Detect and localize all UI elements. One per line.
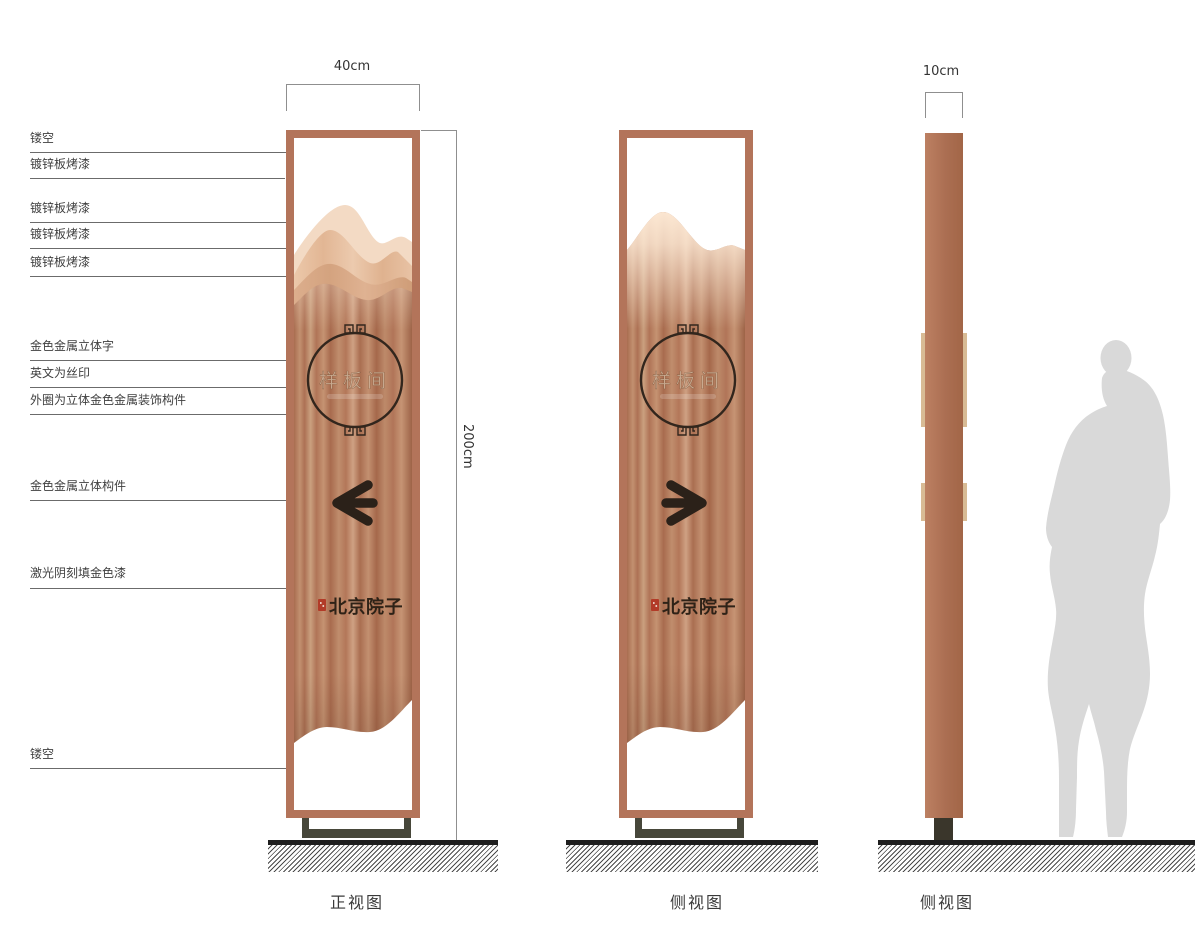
human-silhouette xyxy=(1038,338,1190,840)
leader-line xyxy=(30,276,290,277)
dimension-tick xyxy=(286,84,287,111)
brand-text: 北京院子 xyxy=(329,596,403,617)
seal-detail xyxy=(656,605,658,607)
annotation-label: 镀锌板烤漆 xyxy=(30,201,90,216)
base-bar xyxy=(635,829,744,838)
profile-view-sign xyxy=(925,133,963,818)
seal-detail xyxy=(320,602,322,604)
dimension-bracket xyxy=(925,92,963,93)
circle-text: 样板间 xyxy=(319,370,391,392)
side-view-sign: 样板间 北京院子 xyxy=(619,130,753,818)
dimension-height-line xyxy=(456,130,457,843)
ground-hatch xyxy=(878,845,1195,872)
dimension-tick xyxy=(419,84,420,111)
silkscreen-english-text xyxy=(327,394,383,399)
circle-text: 样板间 xyxy=(652,370,724,392)
leader-line xyxy=(30,414,322,415)
ground-hatch xyxy=(566,845,818,872)
brand-mark: 北京院子 xyxy=(318,596,403,617)
brand-mark: 北京院子 xyxy=(651,596,736,617)
dimension-bracket xyxy=(286,84,420,85)
annotation-label: 外圈为立体金色金属装饰构件 xyxy=(30,393,186,408)
annotation-label: 镀锌板烤漆 xyxy=(30,157,90,172)
annotation-label: 镀锌板烤漆 xyxy=(30,255,90,270)
side-view-graphic: 样板间 北京院子 xyxy=(627,138,745,810)
leader-line xyxy=(30,588,310,589)
dimension-tick xyxy=(925,92,926,118)
annotation-label: 英文为丝印 xyxy=(30,366,90,381)
annotation-label: 镀锌板烤漆 xyxy=(30,227,90,242)
ground-hatch xyxy=(268,845,498,872)
leader-line xyxy=(30,248,292,249)
seal-icon xyxy=(651,599,659,611)
dimension-profile-width: 10cm xyxy=(911,64,971,79)
base-bar xyxy=(302,829,411,838)
front-view-sign: 样板间 北京院子 xyxy=(286,130,420,818)
caption-profile-view: 侧视图 xyxy=(907,889,987,913)
silkscreen-english-text xyxy=(660,394,716,399)
caption-side-view: 侧视图 xyxy=(657,889,737,913)
seal-detail xyxy=(653,602,655,604)
brand-text: 北京院子 xyxy=(662,596,736,617)
caption-front-view: 正视图 xyxy=(317,889,397,913)
leader-line xyxy=(30,222,297,223)
signage-design-sheet: 镂空 镀锌板烤漆 镀锌板烤漆 镀锌板烤漆 镀锌板烤漆 金色金属立体字 英文为丝印… xyxy=(0,0,1195,927)
dimension-front-width: 40cm xyxy=(322,59,382,74)
annotation-label: 金色金属立体构件 xyxy=(30,479,126,494)
dimension-tick xyxy=(421,130,456,131)
copper-panel-shading xyxy=(627,212,745,743)
seal-detail xyxy=(323,605,325,607)
annotation-label: 金色金属立体字 xyxy=(30,339,114,354)
annotation-label: 镂空 xyxy=(30,747,54,762)
dimension-height: 200cm xyxy=(460,424,475,469)
leader-line xyxy=(30,178,285,179)
front-view-graphic: 样板间 北京院子 xyxy=(294,138,412,810)
seal-icon xyxy=(318,599,326,611)
annotation-label: 激光阴刻填金色漆 xyxy=(30,566,126,581)
leader-line xyxy=(30,152,305,153)
leader-line xyxy=(30,768,305,769)
dimension-tick xyxy=(962,92,963,118)
annotation-label: 镂空 xyxy=(30,131,54,146)
profile-base-block xyxy=(934,818,953,841)
